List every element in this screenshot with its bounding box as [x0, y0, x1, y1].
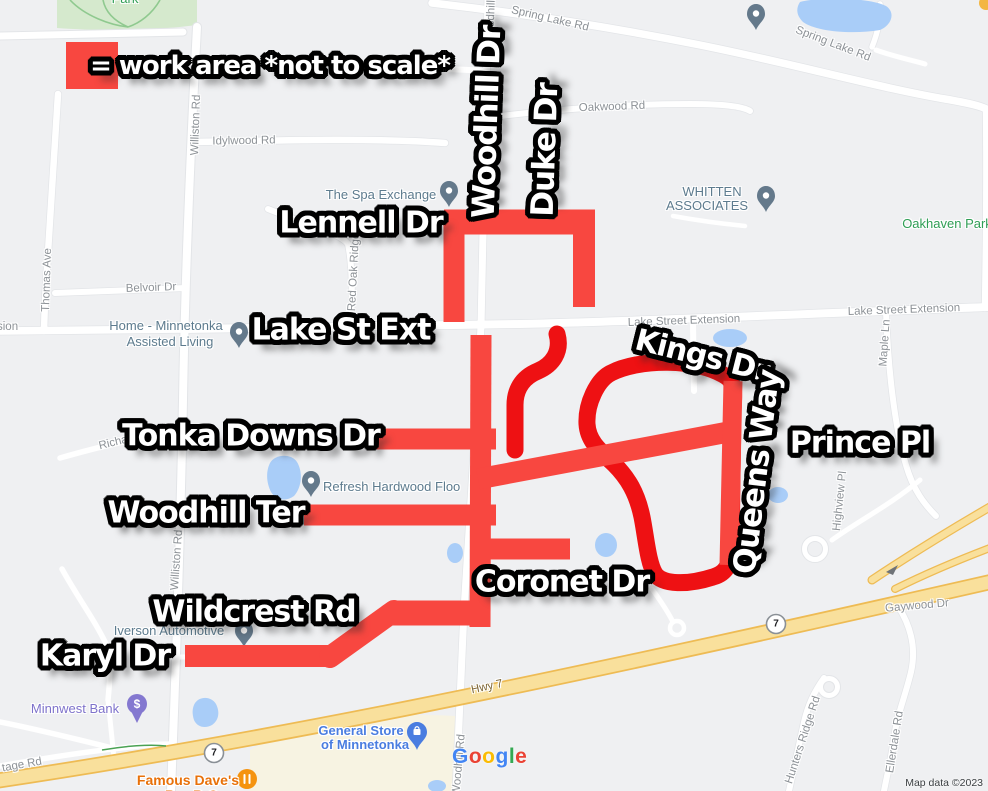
- work-label-tonka-downs: Tonka Downs Dr: [122, 419, 380, 454]
- hwy-7-shield-number: 7: [773, 619, 779, 630]
- google-logo-letter: e: [515, 745, 527, 768]
- road-label-idylwood: Idylwood Rd: [212, 134, 275, 147]
- map-canvas[interactable]: Spring Lake Rd Spring Lake Rd Oakwood Rd…: [0, 0, 988, 791]
- work-label-lake-st-ext: Lake St Ext: [252, 313, 431, 348]
- google-logo-letter: o: [469, 745, 482, 768]
- north-pin-icon[interactable]: [747, 4, 765, 30]
- work-label-woodhill-dr: Woodhill Dr: [466, 25, 509, 219]
- home-pin-icon[interactable]: [230, 322, 248, 348]
- poi-label-minnwest[interactable]: Minnwest Bank: [31, 702, 119, 717]
- refresh-pin-icon[interactable]: [302, 471, 320, 497]
- whitten-pin-icon[interactable]: [757, 186, 775, 212]
- corner-pin-icon[interactable]: [979, 0, 988, 10]
- famous-daves-pin-icon[interactable]: [237, 769, 257, 789]
- legend-label: = work area *not to scale*: [90, 51, 450, 81]
- work-label-duke-dr: Duke Dr: [525, 83, 566, 218]
- hwy-7-shield-number: 7: [211, 748, 217, 759]
- work-label-karyl-dr: Karyl Dr: [40, 639, 170, 674]
- poi-label-oakhaven-park[interactable]: Oakhaven Park: [902, 217, 988, 232]
- poi-label-general-2[interactable]: of Minnetonka: [321, 738, 409, 753]
- road-label-belvoir: Belvoir Dr: [126, 281, 177, 295]
- minnwest-pin-symbol: $: [134, 697, 141, 712]
- work-label-prince-pl: Prince Pl: [790, 426, 930, 461]
- work-label-lennell-dr: Lennell Dr: [279, 206, 442, 241]
- google-logo-letter: g: [496, 745, 509, 768]
- poi-label-spa[interactable]: The Spa Exchange: [326, 188, 437, 203]
- spa-pin-icon[interactable]: [440, 181, 458, 207]
- google-logo-letter: G: [452, 745, 469, 768]
- road-label-thomas: Thomas Ave: [40, 248, 54, 312]
- poi-label-whitten-2[interactable]: ASSOCIATES: [666, 199, 748, 214]
- poi-label-famous-1[interactable]: Famous Dave's: [137, 773, 239, 788]
- road-label-williston-n: Williston Rd: [189, 94, 203, 155]
- work-label-coronet-dr: Coronet Dr: [475, 565, 649, 600]
- road-label-oakwood: Oakwood Rd: [579, 100, 646, 114]
- work-label-wildcrest-rd: Wildcrest Rd: [152, 595, 355, 630]
- work-label-woodhill-ter: Woodhill Ter: [108, 496, 305, 531]
- map-attribution: Map data ©2023: [905, 777, 983, 789]
- poi-label-refresh[interactable]: Refresh Hardwood Floo: [323, 480, 460, 495]
- google-logo[interactable]: Google: [452, 745, 527, 769]
- poi-label-home-1[interactable]: Home - Minnetonka: [109, 319, 222, 334]
- road-label-extension-fragment: sion: [0, 321, 18, 333]
- google-logo-letter: o: [482, 745, 495, 768]
- poi-label-park[interactable]: Park: [112, 0, 139, 6]
- poi-label-home-2[interactable]: Assisted Living: [127, 335, 214, 350]
